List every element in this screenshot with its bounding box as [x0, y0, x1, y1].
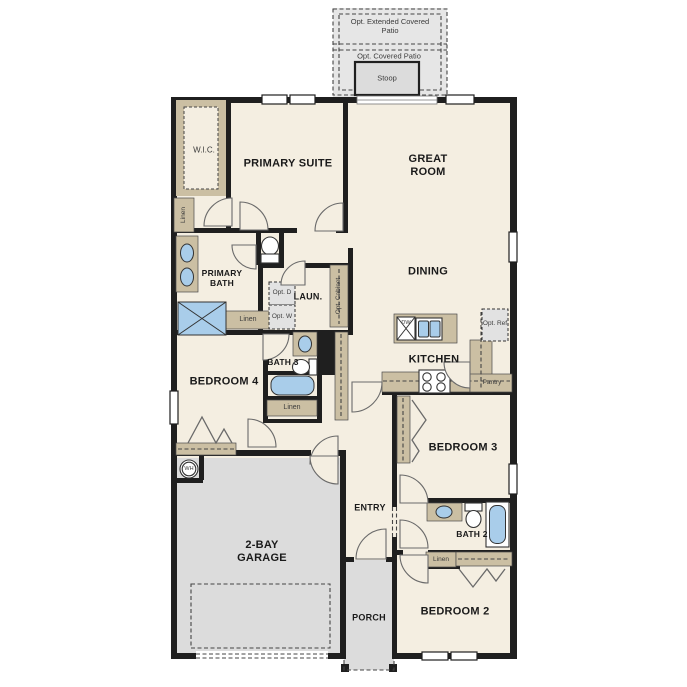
wall: [256, 233, 261, 265]
label-entry: ENTRY: [354, 503, 385, 514]
sink-bowl: [430, 321, 440, 337]
window: [290, 95, 315, 104]
toilet: [466, 511, 481, 528]
label-linen-left: Linen: [180, 207, 188, 223]
wall: [397, 550, 403, 555]
label-bath2: BATH 2: [454, 529, 490, 539]
label-opt-cabinet: Opt. Cabinet: [335, 278, 343, 315]
label-linen-primary: Linen: [239, 316, 256, 324]
burner: [437, 383, 445, 391]
sink: [299, 336, 312, 352]
window: [446, 95, 474, 104]
wall: [343, 97, 348, 233]
wall: [340, 557, 354, 562]
label-primary-suite: PRIMARY SUITE: [242, 158, 334, 171]
sink-bowl: [419, 321, 429, 337]
toilet-tank: [465, 503, 482, 511]
wall: [266, 419, 317, 423]
label-primary-bath: PRIMARY BATH: [191, 268, 253, 288]
label-opt-dryer: Opt. D: [270, 289, 294, 297]
wall: [199, 456, 204, 480]
label-pantry: Pantry: [483, 379, 502, 387]
window: [451, 652, 477, 660]
toilet-tank: [261, 254, 279, 263]
window: [262, 95, 287, 104]
wall: [279, 233, 284, 265]
window: [509, 232, 517, 262]
wall: [317, 375, 322, 423]
window: [509, 464, 517, 494]
sink: [436, 506, 452, 518]
toilet: [262, 237, 279, 255]
label-extended-patio: Opt. Extended Covered Patio: [344, 18, 436, 36]
label-bedroom3: BEDROOM 3: [429, 442, 498, 455]
label-stoop: Stoop: [377, 75, 397, 84]
bathtub: [490, 506, 506, 544]
porch-post: [389, 664, 397, 672]
window: [422, 652, 448, 660]
wall: [340, 557, 346, 659]
label-dining: DINING: [408, 266, 448, 279]
wall: [266, 396, 317, 400]
floor-plan: Opt. Extended Covered Patio Opt. Covered…: [0, 0, 687, 687]
wall: [348, 248, 353, 333]
label-bedroom4: BEDROOM 4: [190, 376, 259, 389]
burner: [423, 383, 431, 391]
wall: [392, 537, 397, 559]
window: [170, 391, 178, 424]
label-kitchen: KITCHEN: [409, 354, 460, 367]
label-dishwasher: DW: [401, 320, 410, 326]
wall: [171, 653, 198, 659]
sink: [181, 244, 194, 262]
label-wic: W.I.C.: [193, 145, 215, 154]
label-laundry: LAUN.: [294, 292, 323, 303]
label-opt-washer: Opt. W: [270, 313, 294, 321]
floor-plan-drawing: [0, 0, 687, 687]
bathtub: [271, 376, 314, 395]
wall: [392, 557, 397, 659]
plumbing-chase: [317, 332, 335, 375]
burner: [423, 373, 431, 381]
wall: [340, 453, 346, 559]
label-covered-patio: Opt. Covered Patio: [324, 53, 454, 62]
porch-post: [341, 664, 349, 672]
label-opt-ref: Opt. Ref: [482, 320, 508, 328]
toilet-tank: [309, 359, 317, 375]
label-bedroom2: BEDROOM 2: [421, 606, 490, 619]
label-porch: PORCH: [352, 613, 386, 624]
garage-door-opening: [196, 651, 328, 661]
burner: [437, 373, 445, 381]
label-great-room: GREAT ROOM: [395, 153, 461, 179]
label-water-heater: WH: [184, 466, 193, 472]
label-bath3: BATH 3: [265, 357, 301, 367]
label-linen-bath3: Linen: [283, 404, 300, 412]
label-linen-bath2: Linen: [433, 556, 449, 564]
wall: [392, 395, 397, 507]
label-garage: 2-BAY GARAGE: [220, 539, 304, 565]
